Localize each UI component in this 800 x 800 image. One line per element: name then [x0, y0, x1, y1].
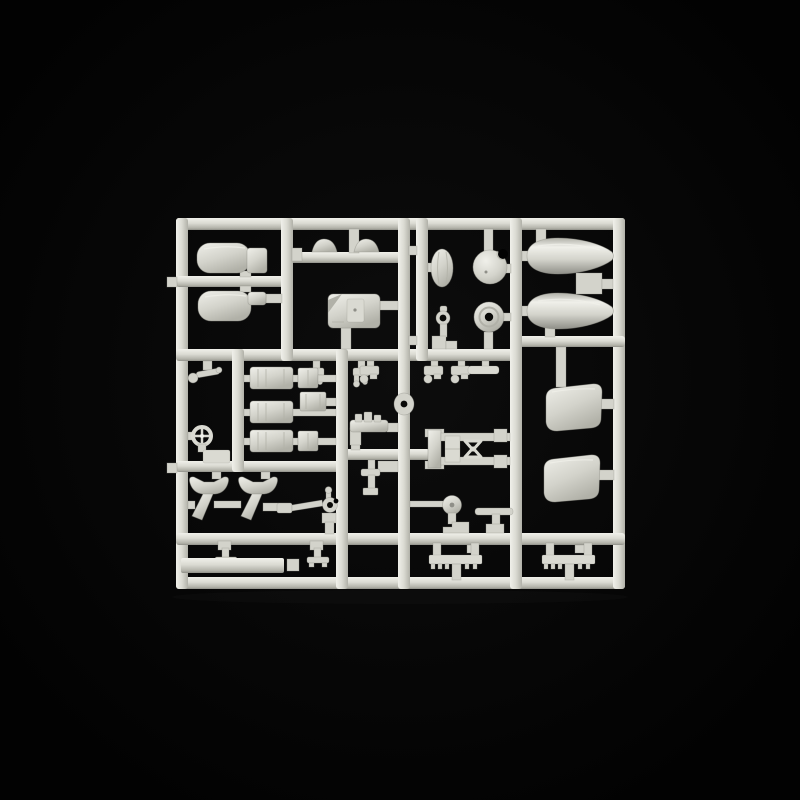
- rail-v2b: [416, 218, 428, 361]
- rail-v-mid: [336, 349, 348, 589]
- teardrop-fairing: [431, 249, 453, 287]
- table-reflection: [172, 590, 628, 604]
- rail-h1: [176, 349, 522, 361]
- cowl-panel-upper: [546, 384, 602, 431]
- rail-link-branch: [342, 449, 430, 460]
- cockpit-tub: [328, 294, 380, 328]
- rail-h2: [176, 461, 342, 472]
- rail-grommet: [394, 393, 414, 415]
- flat-strip-plate: [181, 558, 299, 573]
- cowl-panel-lower: [544, 455, 600, 502]
- rail-v3: [510, 218, 522, 589]
- ball-turret: [473, 249, 508, 284]
- left-tab-lower: [167, 463, 177, 473]
- left-tab-upper: [167, 277, 177, 287]
- rail-v1: [281, 218, 293, 361]
- rail-dome-branch: [287, 252, 404, 263]
- rail-v-cylinders: [232, 349, 244, 472]
- photo-canvas: Unpainted light grey injection-moulded m…: [0, 0, 800, 800]
- junction-box: [300, 392, 326, 411]
- rail-panel-shelf: [176, 276, 293, 287]
- rail-bomb-shelf: [510, 336, 625, 347]
- wheel-disc: [474, 302, 504, 332]
